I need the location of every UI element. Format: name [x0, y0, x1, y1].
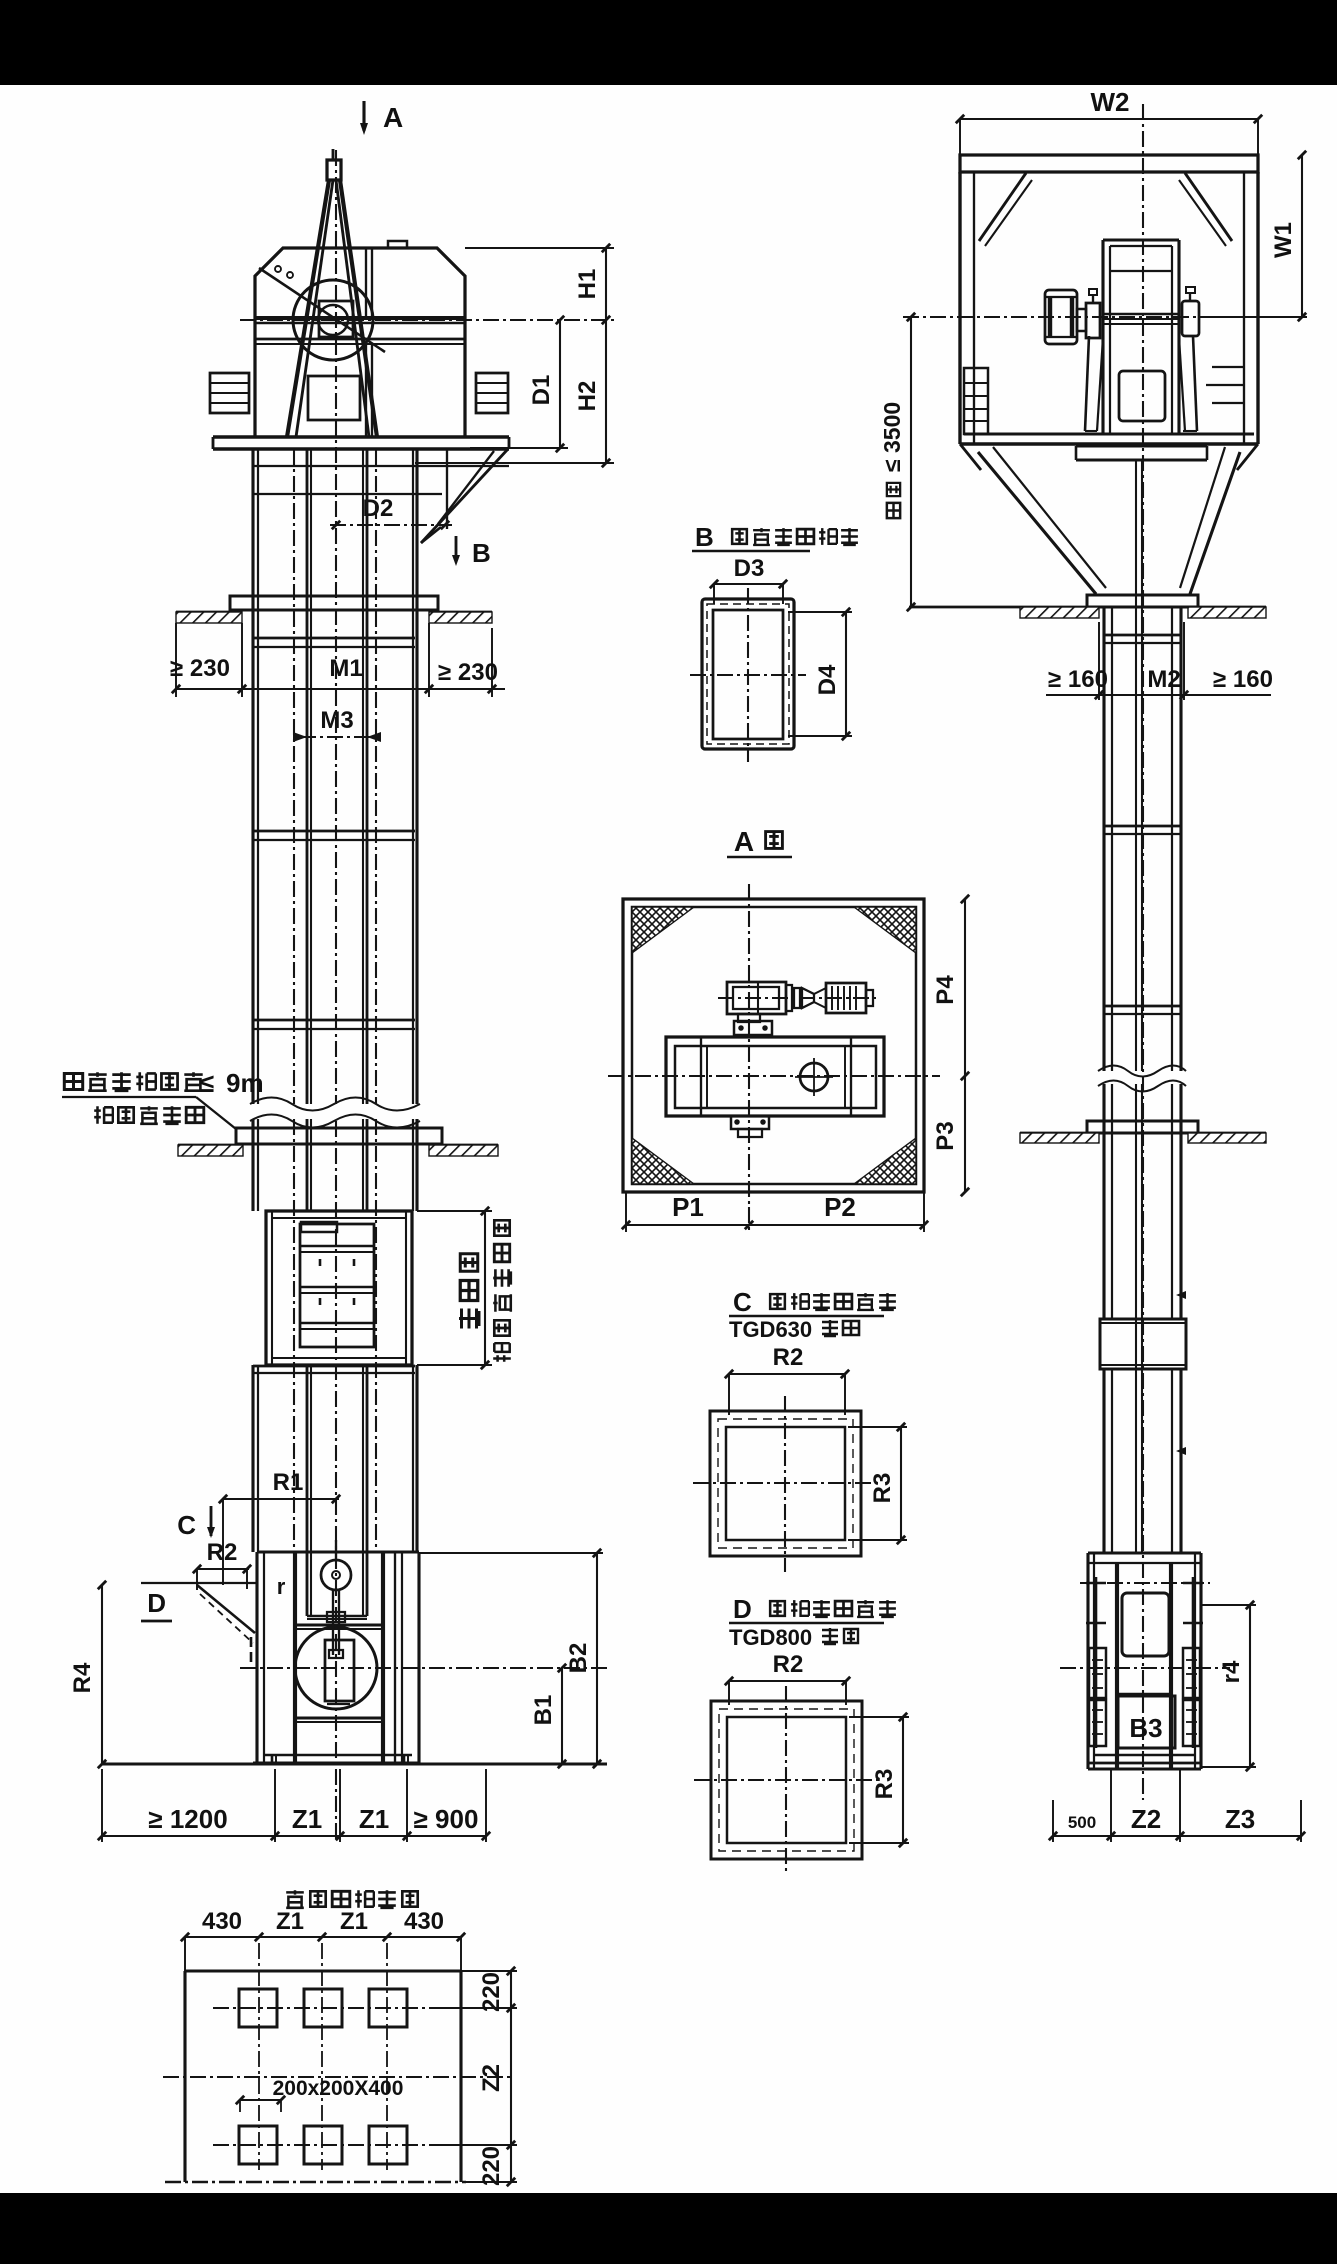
svg-text:D3: D3 [734, 555, 765, 582]
svg-text:D: D [733, 1594, 752, 1624]
svg-text:R1: R1 [273, 1469, 304, 1496]
svg-text:P3: P3 [932, 1121, 959, 1150]
svg-text:D1: D1 [528, 375, 555, 406]
svg-text:Z1: Z1 [359, 1804, 389, 1834]
svg-text:A: A [734, 826, 754, 857]
svg-text:≥ 160: ≥ 160 [1048, 666, 1108, 693]
svg-text:W2: W2 [1091, 87, 1130, 117]
svg-text:≥ 160: ≥ 160 [1213, 666, 1273, 693]
svg-text:R2: R2 [207, 1539, 238, 1566]
svg-text:M1: M1 [329, 655, 362, 682]
svg-text:M3: M3 [320, 707, 353, 734]
svg-text:R2: R2 [773, 1344, 804, 1371]
svg-text:C: C [177, 1510, 196, 1540]
svg-text:Z2: Z2 [478, 2064, 505, 2092]
svg-text:≥ 230: ≥ 230 [438, 659, 498, 686]
svg-text:Z1: Z1 [276, 1908, 304, 1935]
svg-text:430: 430 [404, 1908, 444, 1935]
svg-text:TGD800: TGD800 [729, 1625, 812, 1650]
svg-text:500: 500 [1068, 1813, 1096, 1832]
svg-text:9m: 9m [226, 1068, 264, 1098]
svg-text:B: B [472, 538, 491, 568]
svg-text:P2: P2 [824, 1192, 856, 1222]
svg-text:R4: R4 [69, 1662, 96, 1693]
svg-text:P1: P1 [672, 1192, 704, 1222]
svg-text:430: 430 [202, 1908, 242, 1935]
svg-text:W1: W1 [1270, 222, 1297, 258]
svg-text:C: C [733, 1287, 752, 1317]
svg-text:≥ 900: ≥ 900 [414, 1804, 479, 1834]
svg-text:H2: H2 [574, 381, 601, 412]
svg-text:D: D [147, 1588, 166, 1618]
svg-text:Z2: Z2 [1131, 1804, 1161, 1834]
svg-text:Z1: Z1 [292, 1804, 322, 1834]
svg-text:M2: M2 [1147, 666, 1180, 693]
svg-text:A: A [383, 102, 403, 133]
svg-text:B1: B1 [530, 1695, 557, 1726]
svg-text:D4: D4 [814, 664, 841, 695]
svg-text:B: B [695, 522, 714, 552]
svg-text:≥ 230: ≥ 230 [170, 655, 230, 682]
svg-text:R3: R3 [871, 1769, 898, 1800]
svg-text:P4: P4 [932, 975, 959, 1005]
svg-text:B2: B2 [565, 1643, 592, 1674]
svg-text:220: 220 [478, 2146, 505, 2186]
svg-text:220: 220 [478, 1972, 505, 2012]
svg-text:R2: R2 [773, 1651, 804, 1678]
svg-text:r: r [277, 1574, 286, 1599]
svg-text:200x200X400: 200x200X400 [273, 2077, 404, 2100]
svg-text:R3: R3 [869, 1473, 896, 1504]
svg-text:B3: B3 [1129, 1713, 1162, 1743]
svg-text:≤: ≤ [200, 1068, 214, 1098]
svg-text:≥ 1200: ≥ 1200 [148, 1804, 227, 1834]
svg-text:r4: r4 [1218, 1660, 1245, 1683]
svg-text:H1: H1 [574, 269, 601, 300]
svg-text:TGD630: TGD630 [729, 1317, 812, 1342]
svg-text:Z3: Z3 [1225, 1804, 1255, 1834]
svg-text:Z1: Z1 [340, 1908, 368, 1935]
svg-text:≤ 3500: ≤ 3500 [879, 402, 905, 472]
